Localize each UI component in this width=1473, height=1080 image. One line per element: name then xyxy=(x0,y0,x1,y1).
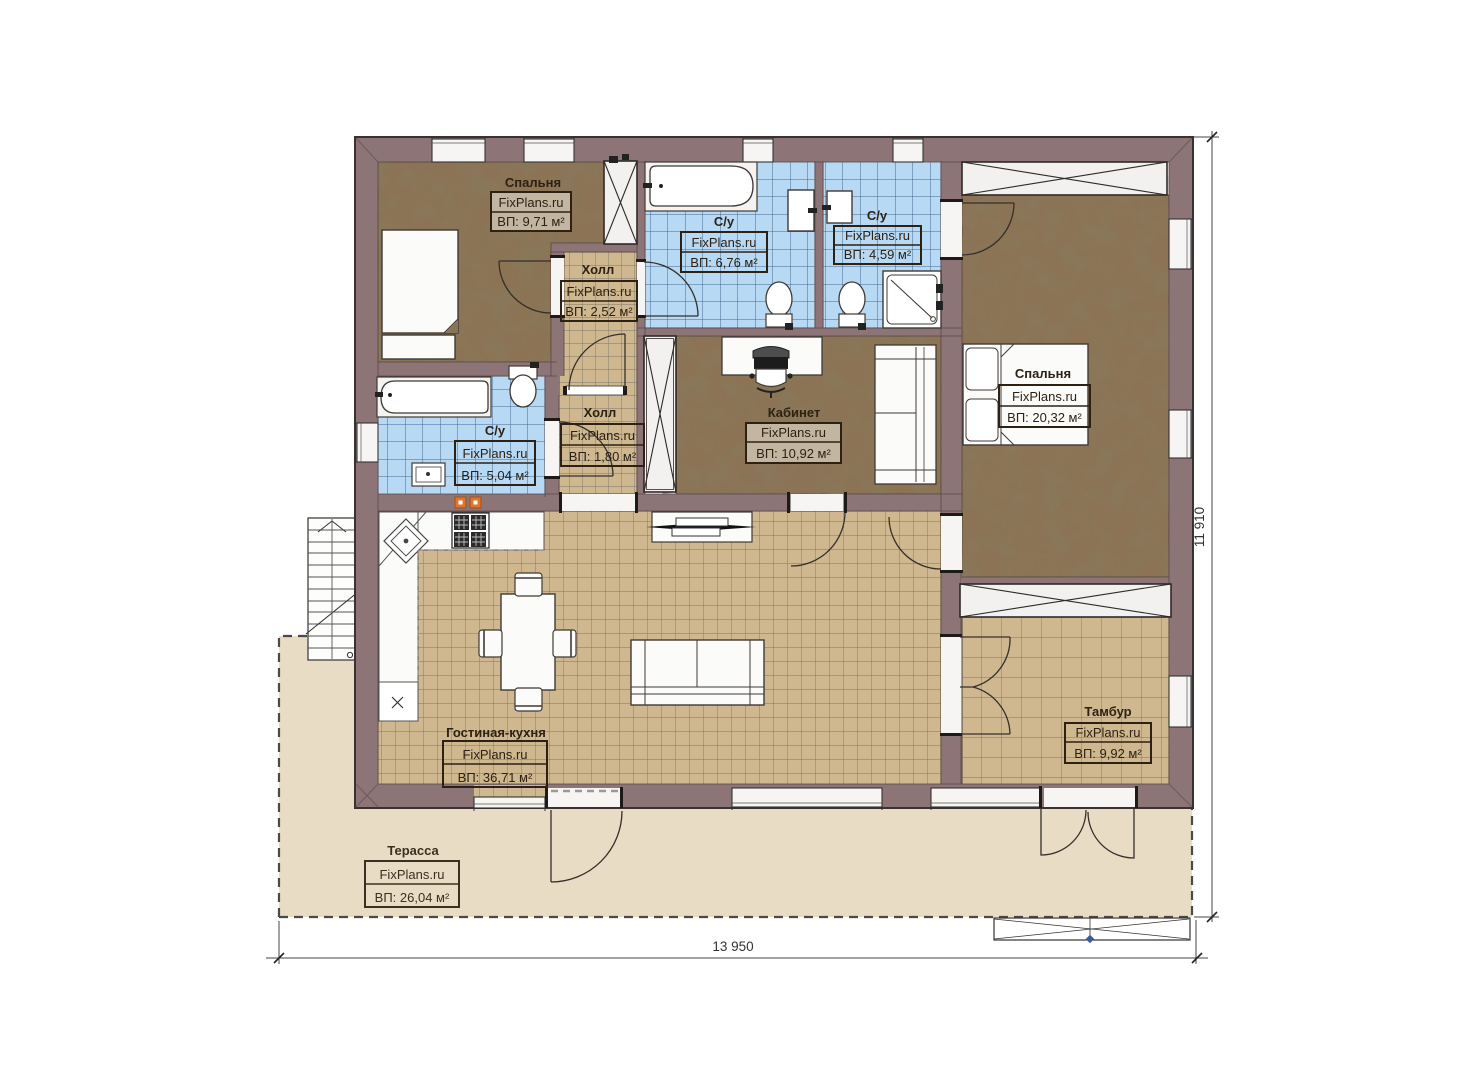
svg-text:FixPlans.ru: FixPlans.ru xyxy=(1012,389,1077,404)
svg-text:Кабинет: Кабинет xyxy=(768,405,821,420)
svg-text:С/у: С/у xyxy=(485,423,506,438)
svg-text:FixPlans.ru: FixPlans.ru xyxy=(845,228,910,243)
svg-text:Спальня: Спальня xyxy=(505,175,561,190)
svg-text:С/у: С/у xyxy=(867,208,888,223)
svg-text:Терасса: Терасса xyxy=(387,843,439,858)
svg-text:Тамбур: Тамбур xyxy=(1084,704,1131,719)
svg-text:FixPlans.ru: FixPlans.ru xyxy=(761,425,826,440)
svg-text:С/у: С/у xyxy=(714,214,735,229)
svg-text:ВП: 9,92 м²: ВП: 9,92 м² xyxy=(1074,746,1142,761)
svg-text:ВП: 5,04 м²: ВП: 5,04 м² xyxy=(461,468,529,483)
svg-text:Спальня: Спальня xyxy=(1015,366,1071,381)
svg-text:FixPlans.ru: FixPlans.ru xyxy=(566,284,631,299)
svg-text:ВП: 26,04 м²: ВП: 26,04 м² xyxy=(375,890,450,905)
svg-text:ВП: 2,52 м²: ВП: 2,52 м² xyxy=(565,304,633,319)
svg-text:FixPlans.ru: FixPlans.ru xyxy=(379,867,444,882)
svg-text:ВП: 4,59 м²: ВП: 4,59 м² xyxy=(844,247,912,262)
svg-text:ВП: 9,71 м²: ВП: 9,71 м² xyxy=(497,214,565,229)
svg-text:13 950: 13 950 xyxy=(712,939,753,954)
svg-text:FixPlans.ru: FixPlans.ru xyxy=(462,446,527,461)
svg-text:ВП: 6,76 м²: ВП: 6,76 м² xyxy=(690,255,758,270)
svg-text:ВП: 1,80 м²: ВП: 1,80 м² xyxy=(569,449,637,464)
svg-text:Холл: Холл xyxy=(584,405,617,420)
svg-text:FixPlans.ru: FixPlans.ru xyxy=(498,195,563,210)
svg-text:FixPlans.ru: FixPlans.ru xyxy=(691,235,756,250)
svg-text:FixPlans.ru: FixPlans.ru xyxy=(570,428,635,443)
svg-text:ВП: 10,92 м²: ВП: 10,92 м² xyxy=(756,446,831,461)
svg-text:FixPlans.ru: FixPlans.ru xyxy=(462,747,527,762)
svg-text:ВП: 36,71 м²: ВП: 36,71 м² xyxy=(458,770,533,785)
svg-text:ВП: 20,32 м²: ВП: 20,32 м² xyxy=(1007,410,1082,425)
svg-text:Гостиная-кухня: Гостиная-кухня xyxy=(446,725,546,740)
svg-text:FixPlans.ru: FixPlans.ru xyxy=(1075,725,1140,740)
svg-text:11 910: 11 910 xyxy=(1192,507,1207,547)
svg-text:Холл: Холл xyxy=(582,262,615,277)
